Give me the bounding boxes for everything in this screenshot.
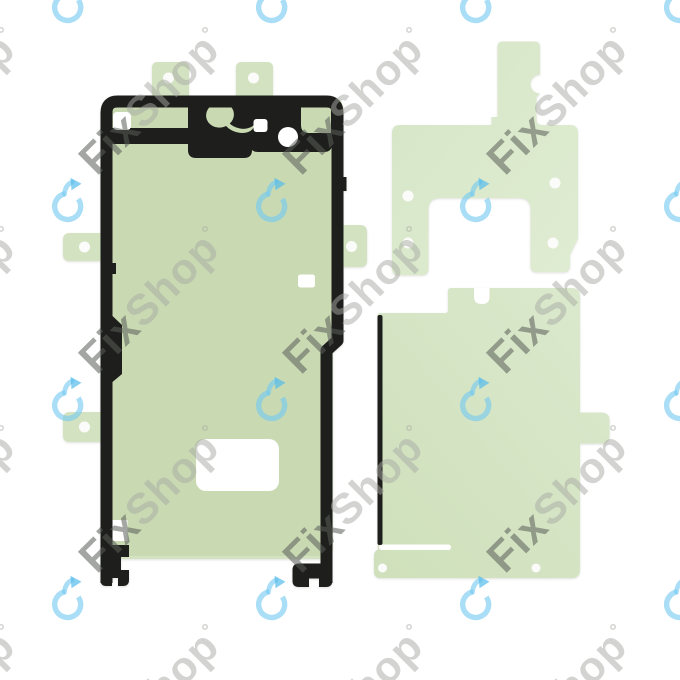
fingerprint-window-cutout (196, 439, 279, 491)
bottom-slot-cutout (379, 545, 451, 551)
adhesive-pieces-illustration (0, 0, 680, 680)
adhesive-piece-top-right (392, 42, 578, 276)
product-photo: FixShop° FixShop° FixShop° FixShop° FixS… (0, 0, 680, 680)
corner-green-notch (301, 107, 331, 133)
sensor-cutout (254, 119, 268, 132)
adhesive-piece-display (63, 62, 367, 587)
top-left-cutout (113, 112, 131, 130)
right-edge-notch (298, 275, 315, 288)
top-slot-cutout (474, 288, 490, 304)
bottom-right-adhesive-body (374, 288, 610, 578)
adhesive-piece-bottom-right (374, 288, 610, 578)
speaker-hole-cutout (278, 127, 298, 147)
left-edge-notch (113, 520, 128, 541)
edge-black-strip (378, 315, 383, 545)
